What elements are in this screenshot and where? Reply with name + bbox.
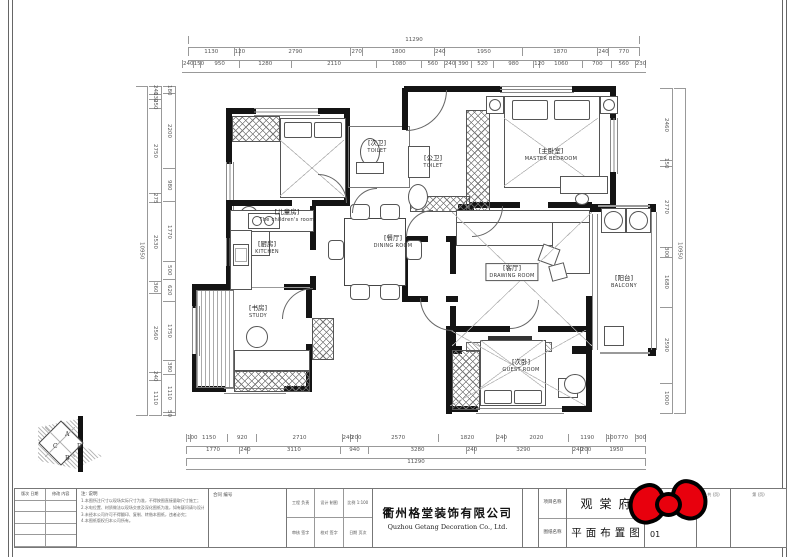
dim-value: 240 [149,373,161,381]
dim-value: 3290 [475,446,573,454]
dim-value: 770 [609,48,640,56]
dim-value: 240 [497,434,505,442]
dim-value: 2110 [292,60,377,68]
room-name-en: TOILET [367,148,386,154]
compass-cross [45,427,75,457]
dim-right-col: 24601502770300168025901000 [660,88,673,414]
dim-value: 240 [445,60,456,68]
dim-value: 390 [456,60,473,68]
dim-value: 2460 [660,88,672,161]
dim-value: 275 [149,194,161,203]
furniture-round [575,193,589,205]
room-name-cn: [书房] [249,305,267,313]
dim-value: 1110 [149,381,161,416]
field-label: 图纸名称 [539,519,566,548]
door-swing [406,210,433,237]
sheet-index-cell: 第 (页) [731,489,786,547]
revision-header: 修改 内容 [46,489,77,501]
dim-value: 270 [351,48,363,56]
room-label-dining: [餐厅]DINING ROOM [374,235,413,249]
compass-letter: C [53,443,58,450]
note-line: 2.水电位置、材质做法以现场交底及深化图纸为准，如有疑问请与设计师联系； [81,505,204,512]
dim-value: 2530 [149,203,161,281]
thin-line [600,352,650,354]
revision-empty-cell [46,512,77,524]
dim-value: 240 [240,446,248,454]
dim-value: 240 [573,446,581,454]
revision-header: 版次 日期 [15,489,46,501]
dim-value: 3110 [248,446,341,454]
dim-value: 50 [163,413,175,416]
thin-line [598,205,650,207]
furniture-outline [356,162,384,174]
note-line: 4.本图纸版权归本公司所有。 [81,518,204,525]
note-line: 1.本图所注尺寸以现场实际尺寸为准，不得按图直接量取尺寸施工； [81,498,204,505]
dim-value: 1110 [163,375,175,413]
dim-value: 200 [351,434,358,442]
dim-value: 1770 [163,202,175,262]
dining-table [344,218,406,286]
note-line: 3.未经本公司许可不得翻印、复制、转借本图纸，违者必究； [81,512,204,519]
notes-cell: 注: 说明 1.本图所注尺寸以现场实际尺寸为准，不得按图直接量取尺寸施工；2.水… [77,489,209,547]
dim-value: 2200 [163,94,175,168]
hatch-flag [80,444,102,466]
room-label-living: [客厅]DRAWING ROOM [485,263,538,281]
dim-value: 1770 [186,446,240,454]
dim-value: 2750 [149,109,161,194]
window [254,108,320,116]
field-label-column: 项目名称图纸名称 [539,489,567,547]
contract-cell: 合同 编号 [209,489,287,547]
dim-value: 1080 [377,60,421,68]
dim-top-row: 2401509501280211010805602403905209801201… [182,60,646,73]
door-swing [282,288,313,319]
revision-empty-cell [46,535,77,547]
wall-segment [468,86,502,92]
dim-value: 560 [612,60,635,68]
furniture-round [603,99,615,111]
company-name-en: Quzhou Getang Decoration Co., Ltd. [388,523,508,531]
window [476,408,564,414]
dim-value: 950 [201,60,240,68]
dim-value: 1870 [523,48,598,56]
dim-value: 240 [598,48,608,56]
dim-value: 2020 [505,434,569,442]
dim-value: 520 [472,60,494,68]
furniture-round [408,184,428,210]
window [610,118,618,174]
dim-bottom-total: 11290 [186,458,646,470]
dim-value: 1680 [660,258,672,308]
dim-value: 200 [581,446,588,454]
dim-value: 150 [194,60,201,68]
dim-value: 2770 [660,167,672,248]
floor-plan: [儿童房]The children's room[次卫]TOILET[公卫]TO… [0,0,800,557]
dim-value: 300 [660,248,672,258]
bed-pillow [512,100,548,120]
room-label-study: [书房]STUDY [249,305,267,319]
dim-value: 300 [636,434,646,442]
info-cell: 工程 负责 [287,489,315,518]
dim-value: 1280 [240,60,292,68]
company-name-cn: 衢州格堂装饰有限公司 [383,505,513,521]
room-name-cn: [阳台] [611,275,637,283]
fixture-inner [235,248,247,262]
drawing-sheet: { "rooms": [ {"id":"children","cn":"[儿童房… [0,0,800,557]
room-name-cn: [厨房] [255,241,279,249]
dim-value: 770 [611,434,636,442]
dim-value: 11290 [188,36,640,44]
dim-value: 1130 [188,48,235,56]
dim-value: 240 [435,48,445,56]
dim-top-total: 11290 [188,36,640,48]
furniture-round [489,99,501,111]
revision-empty-cell [15,501,46,513]
revision-empty-cell [46,501,77,513]
dining-chair [328,240,344,260]
door-swing [420,298,453,331]
dining-chair [380,204,400,220]
dim-value: 2710 [257,434,342,442]
window [500,86,574,93]
room-label-kitchen: [厨房]KITCHEN [255,241,279,255]
dim-value: 920 [228,434,258,442]
dim-value: 1150 [191,434,228,442]
door-swing [352,188,377,213]
dim-value: 11290 [186,458,646,466]
dim-value: 10950 [136,86,147,416]
dim-left-col: 2401302502750275253036025602401110 [149,86,162,416]
furniture-round [246,326,268,348]
dim-left-col: 180220098017705006201750380111050 [163,86,176,416]
dim-value: 980 [163,169,175,203]
room-name-en: DRAWING ROOM [489,273,534,279]
room-name-cn: [公卫] [423,155,442,163]
north-orientation-symbol: ADBC [36,414,102,478]
room-name-cn: [餐厅] [374,235,413,243]
room-name-en: KITCHEN [255,249,279,255]
spacer-cell [523,489,539,547]
field-label: 项目名称 [539,489,566,519]
door-swing [406,90,447,131]
revision-empty-cell [46,524,77,536]
dim-value: 240 [343,434,351,442]
info-cell: 设计 制图 [315,489,343,518]
compass-letter: B [65,455,69,462]
dim-value: 1060 [540,60,583,68]
furniture-round [604,211,623,230]
dim-value: 250 [149,100,161,109]
dim-value: 1000 [660,384,672,414]
revision-table: 版次 日期修改 内容 [15,489,77,547]
dim-left-total: 10950 [136,86,148,416]
info-cell: 审核 签字 [287,518,315,547]
revision-empty-cell [15,535,46,547]
room-name-cn: [主卧室] [525,148,577,156]
window [651,212,657,350]
sheet-col-header: 第 (页) [731,492,786,498]
bow-center-knot [655,492,682,517]
dim-value: 380 [163,361,175,375]
dim-value: 700 [583,60,612,68]
hello-kitty-bow-sticker [628,476,708,534]
dim-value: 1800 [363,48,435,56]
room-label-master: [主卧室]MASTER BEDROOM [525,148,577,162]
wardrobe-hatch [234,370,310,392]
floor-mat [196,290,234,388]
info-cell: 日期 页次 [344,518,372,547]
dim-value: 240 [182,60,194,68]
room-label-balcony: [阳台]BALCONY [611,275,637,289]
dim-value: 1950 [445,48,523,56]
dim-value: 240 [467,446,475,454]
dim-value: 10950 [674,88,685,414]
revision-empty-cell [15,512,46,524]
room-label-toilet_main: [公卫]TOILET [423,155,442,169]
dining-chair [380,284,400,300]
dim-value: 1190 [569,434,607,442]
wardrobe-hatch [312,318,334,360]
dim-value: 2590 [660,308,672,384]
room-name-cn: [次卧] [502,359,539,367]
dim-value: 1750 [163,302,175,361]
furniture-outline [234,350,310,372]
room-name-cn: [次卫] [367,140,386,148]
room-name-en: TOILET [423,163,442,169]
room-name-cn: [客厅] [489,265,534,273]
room-name-en: GUEST ROOM [502,367,539,373]
wall-segment [226,200,292,206]
notes-label: 注: 说明 [81,491,204,497]
bed-pillow [284,122,312,138]
compass-letter: D [77,443,82,450]
info-cell: 比例 1:100 [344,489,372,518]
info-cell: 校对 签字 [315,518,343,547]
dim-value: 180 [163,86,175,94]
room-name-en: MASTER BEDROOM [525,156,577,162]
room-label-toilet_small: [次卫]TOILET [367,140,386,154]
dim-value: 980 [494,60,534,68]
dim-value: 2570 [358,434,439,442]
room-name-en: STUDY [249,313,267,319]
contract-label: 合同 编号 [213,493,232,498]
compass-letter: A [65,431,69,438]
dim-right-total: 10950 [674,88,686,414]
dim-value: 500 [163,262,175,280]
dim-value: 360 [149,282,161,294]
wardrobe-hatch [232,116,280,142]
dim-value: 3280 [369,446,467,454]
dim-value: 2790 [240,48,351,56]
dim-value: 1820 [439,434,497,442]
furniture-outline [560,176,608,194]
room-name-en: DINING ROOM [374,243,413,249]
revision-empty-cell [15,524,46,536]
room-name-en: BALCONY [611,283,637,289]
window [592,214,598,350]
room-name-en: The children's room [259,217,314,223]
dim-value: 1950 [588,446,646,454]
room-name-cn: [儿童房] [259,209,314,217]
room-label-children: [儿童房]The children's room [259,209,314,223]
furniture-round [629,211,648,230]
dim-value: 2560 [149,294,161,373]
dim-value: 940 [341,446,370,454]
info-grid: 工程 负责设计 制图比例 1:100审核 签字校对 签字日期 页次 [287,489,373,547]
furniture-outline [604,326,624,346]
bed-pillow [554,100,590,120]
bed-pillow [314,122,342,138]
dim-value: 560 [422,60,445,68]
dim-value: 230 [636,60,646,68]
company-cell: 衢州格堂装饰有限公司 Quzhou Getang Decoration Co.,… [373,489,523,547]
dim-value: 620 [163,280,175,302]
room-label-guest: [次卧]GUEST ROOM [502,359,539,373]
dining-chair [350,284,370,300]
